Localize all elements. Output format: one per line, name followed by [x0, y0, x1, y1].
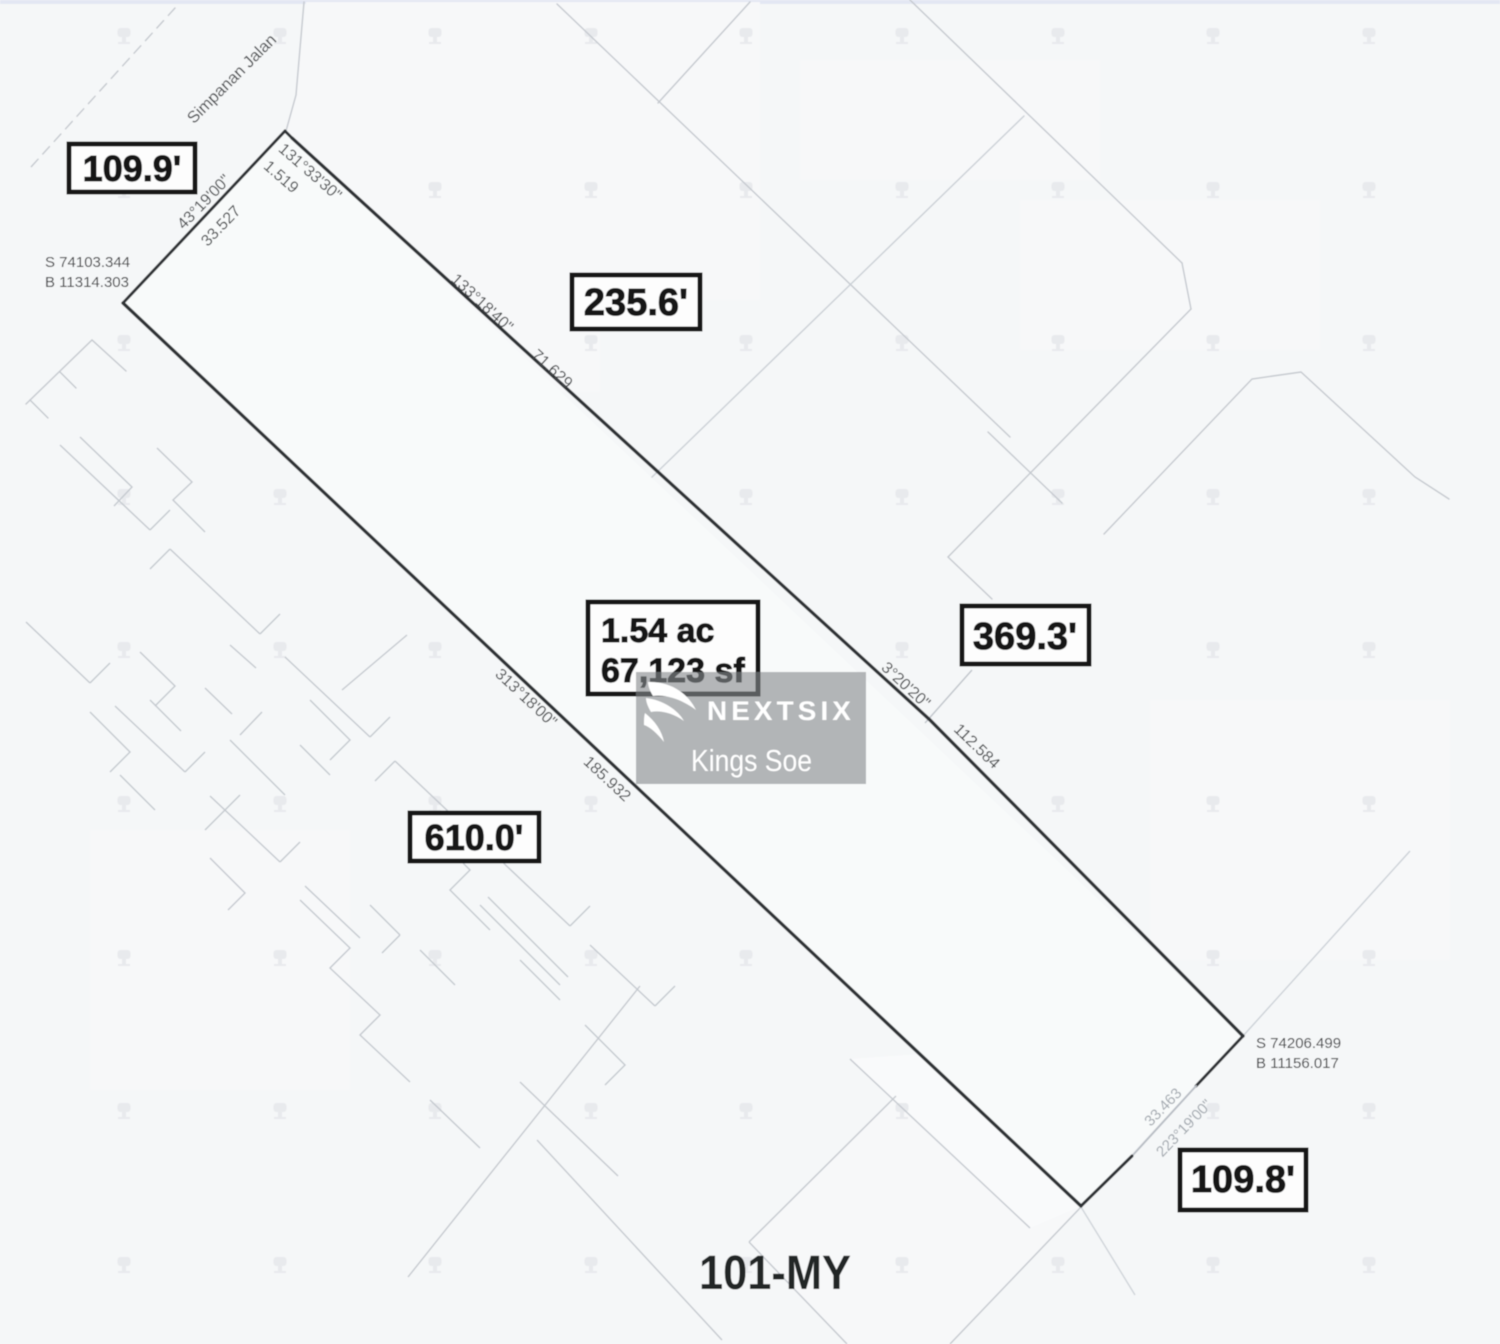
svg-text:S 74206.499: S 74206.499: [1256, 1035, 1341, 1052]
svg-text:B 11156.017: B 11156.017: [1256, 1055, 1339, 1072]
svg-text:Kings Soe: Kings Soe: [691, 743, 812, 778]
svg-text:101-MY: 101-MY: [699, 1247, 851, 1300]
svg-text:NEXTSIX: NEXTSIX: [707, 696, 855, 726]
svg-text:B 11314.303: B 11314.303: [45, 274, 129, 291]
svg-text:109.9': 109.9': [83, 148, 182, 189]
svg-text:109.8': 109.8': [1191, 1159, 1295, 1201]
svg-text:1.54 ac: 1.54 ac: [601, 612, 714, 650]
svg-text:610.0': 610.0': [425, 817, 524, 858]
svg-text:369.3': 369.3': [973, 616, 1077, 658]
svg-text:S 74103.344: S 74103.344: [45, 254, 130, 271]
svg-text:235.6': 235.6': [584, 282, 688, 324]
